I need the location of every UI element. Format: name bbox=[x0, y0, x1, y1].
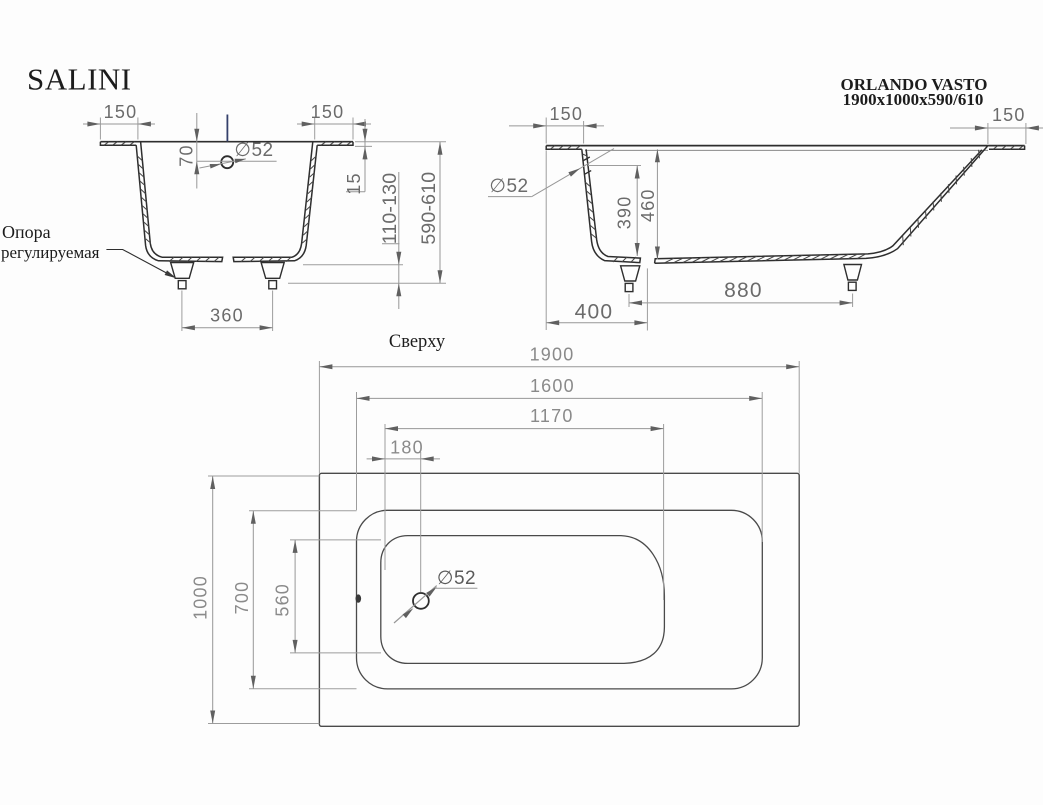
svg-text:Опора: Опора bbox=[2, 222, 51, 242]
svg-text:150: 150 bbox=[311, 102, 345, 122]
svg-text:400: 400 bbox=[575, 301, 614, 324]
svg-text:560: 560 bbox=[273, 583, 293, 617]
svg-text:150: 150 bbox=[549, 104, 583, 124]
svg-text:SALINI: SALINI bbox=[27, 62, 132, 97]
svg-text:∅52: ∅52 bbox=[489, 176, 528, 197]
svg-text:590-610: 590-610 bbox=[418, 172, 440, 245]
svg-text:360: 360 bbox=[210, 306, 244, 326]
svg-text:1000: 1000 bbox=[190, 575, 210, 620]
svg-text:150: 150 bbox=[104, 102, 138, 122]
svg-text:110-130: 110-130 bbox=[379, 173, 401, 245]
svg-text:390: 390 bbox=[615, 196, 635, 230]
svg-text:460: 460 bbox=[638, 188, 658, 222]
svg-text:1600: 1600 bbox=[530, 376, 575, 396]
svg-text:880: 880 bbox=[724, 279, 763, 302]
svg-text:∅52: ∅52 bbox=[234, 140, 273, 161]
svg-text:1900: 1900 bbox=[530, 344, 575, 364]
svg-text:150: 150 bbox=[992, 105, 1026, 125]
svg-text:15: 15 bbox=[344, 172, 364, 194]
svg-text:регулируемая: регулируемая bbox=[1, 243, 100, 262]
svg-text:1900x1000x590/610: 1900x1000x590/610 bbox=[843, 90, 984, 109]
svg-text:700: 700 bbox=[232, 581, 252, 615]
svg-text:70: 70 bbox=[177, 144, 197, 166]
svg-text:∅52: ∅52 bbox=[437, 568, 476, 589]
svg-text:1170: 1170 bbox=[530, 406, 574, 426]
svg-text:180: 180 bbox=[390, 438, 424, 458]
svg-text:Сверху: Сверху bbox=[389, 332, 446, 352]
